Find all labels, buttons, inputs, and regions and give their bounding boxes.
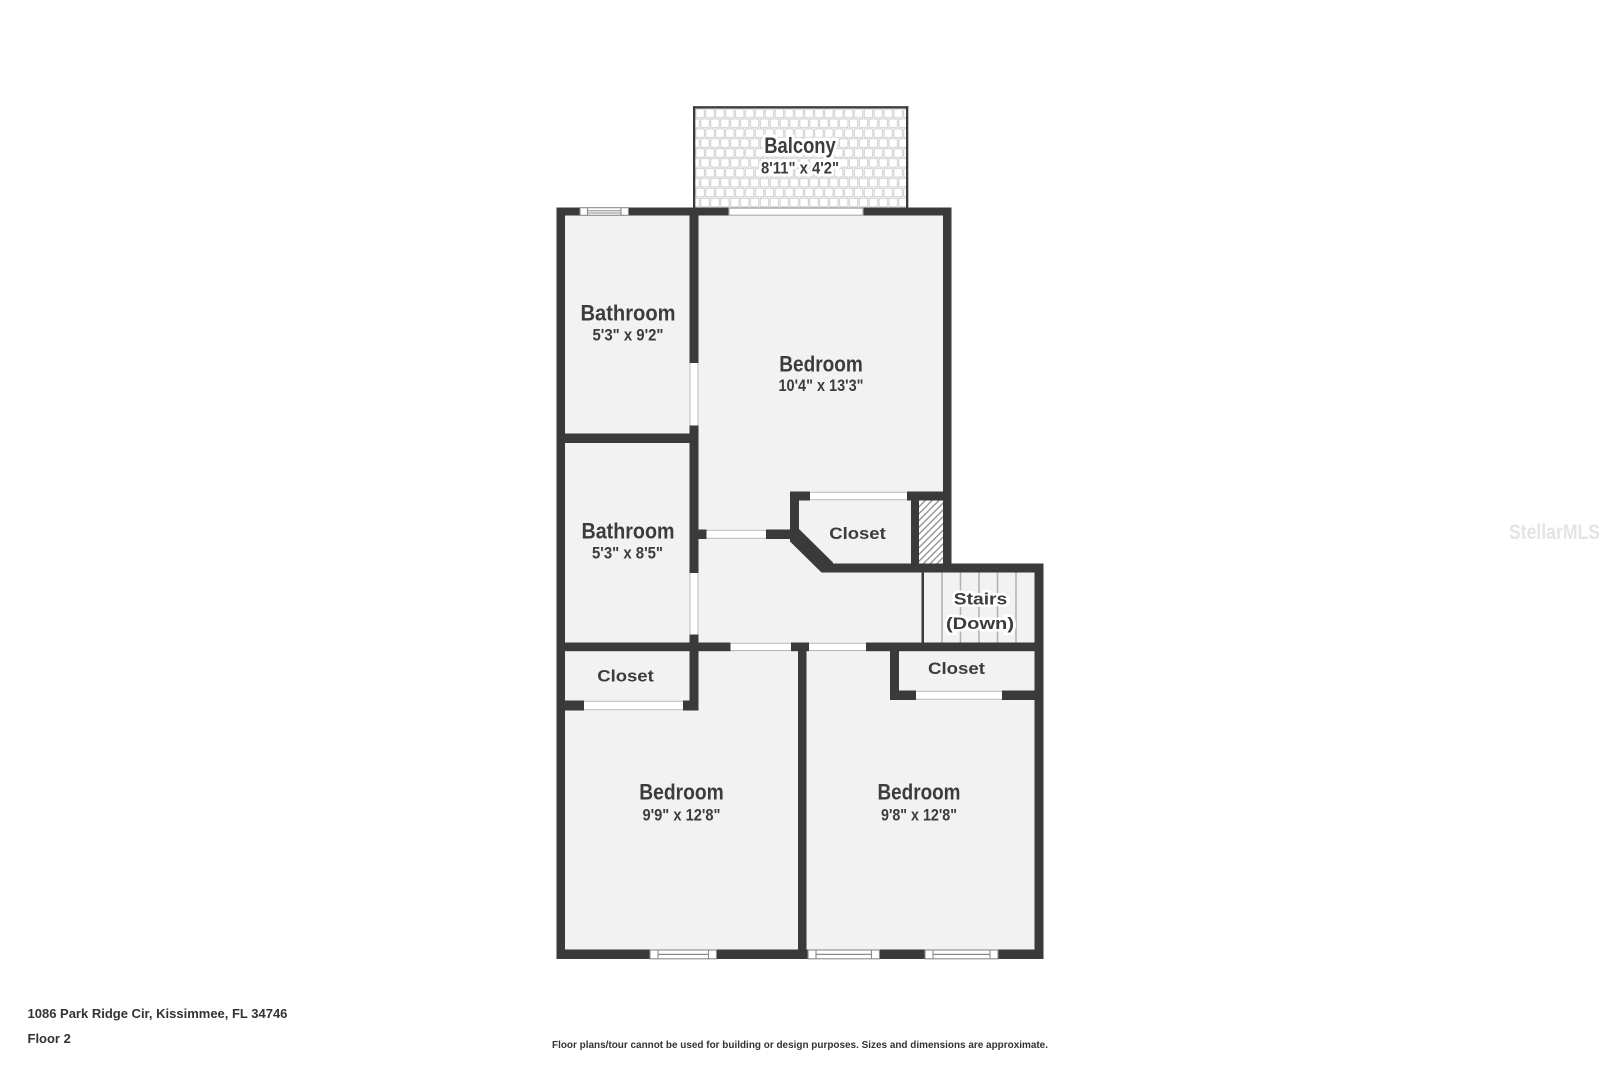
svg-text:Bathroom: Bathroom: [582, 519, 675, 544]
svg-text:Stairs: Stairs: [954, 590, 1008, 609]
svg-text:Balcony: Balcony: [764, 133, 836, 158]
svg-text:(Down): (Down): [946, 614, 1014, 633]
svg-text:8'11" x 4'2": 8'11" x 4'2": [761, 159, 839, 178]
svg-text:Closet: Closet: [597, 667, 654, 686]
svg-text:Closet: Closet: [829, 524, 886, 543]
svg-text:StellarMLS: StellarMLS: [1509, 521, 1600, 544]
svg-text:Bathroom: Bathroom: [581, 301, 676, 326]
svg-text:1086 Park Ridge Cir, Kissimmee: 1086 Park Ridge Cir, Kissimmee, FL 34746: [28, 1006, 288, 1021]
svg-text:5'3" x 8'5": 5'3" x 8'5": [592, 544, 663, 563]
svg-text:9'9" x 12'8": 9'9" x 12'8": [643, 806, 721, 825]
svg-text:Floor plans/tour cannot be use: Floor plans/tour cannot be used for buil…: [552, 1039, 1048, 1051]
svg-text:Bedroom: Bedroom: [878, 780, 961, 805]
svg-text:Bedroom: Bedroom: [639, 780, 724, 805]
svg-text:Bedroom: Bedroom: [779, 352, 863, 377]
svg-text:5'3" x 9'2": 5'3" x 9'2": [593, 326, 664, 345]
svg-text:Floor 2: Floor 2: [28, 1031, 71, 1046]
svg-text:Closet: Closet: [928, 659, 985, 678]
svg-text:9'8" x 12'8": 9'8" x 12'8": [881, 806, 957, 825]
svg-text:10'4" x 13'3": 10'4" x 13'3": [779, 376, 864, 395]
